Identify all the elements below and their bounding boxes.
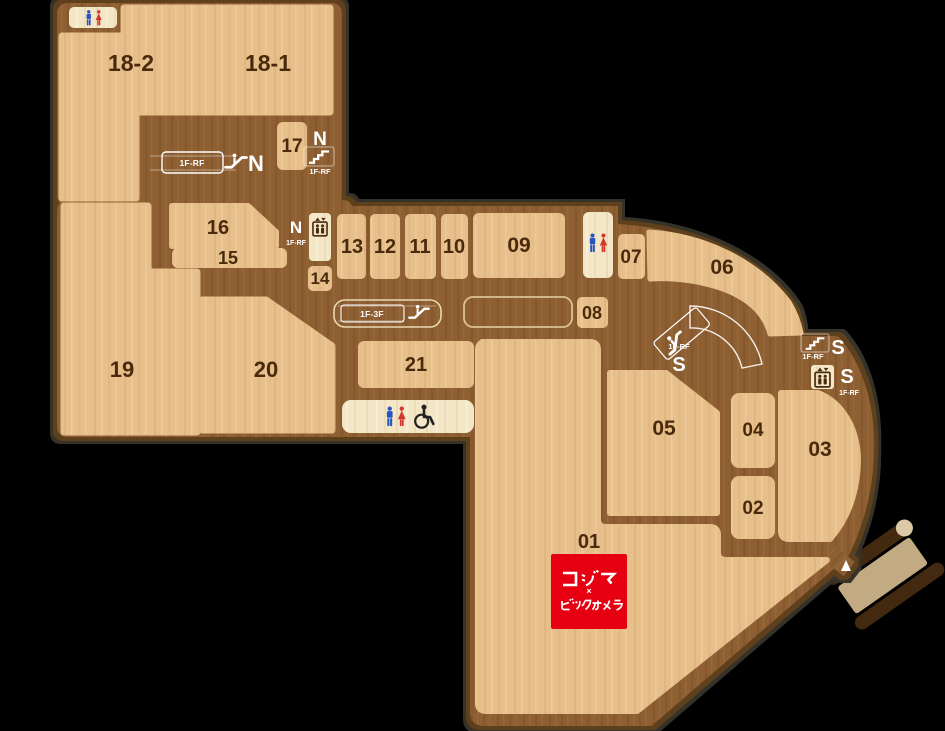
unit-03[interactable]: 03 <box>781 393 858 539</box>
unit-07[interactable]: 07 <box>618 234 645 279</box>
unit-11[interactable]: 11 <box>405 214 436 279</box>
unit-15-label: 15 <box>218 248 238 268</box>
unit-21-label: 21 <box>405 354 427 376</box>
unit-12-label: 12 <box>374 236 396 258</box>
elevator-south-zone: S <box>840 366 853 388</box>
unit-16-label: 16 <box>207 217 229 239</box>
unit-02[interactable]: 02 <box>731 476 775 539</box>
unit-09-label: 09 <box>507 234 530 257</box>
unit-20-label: 20 <box>254 357 278 382</box>
unit-17-label: 17 <box>281 136 302 157</box>
unit-04-label: 04 <box>742 420 764 441</box>
escalator-north-floors: 1F-RF <box>179 158 204 168</box>
unit-08[interactable]: 08 <box>577 297 608 328</box>
store-logo-kojima-biccamera[interactable]: × <box>551 554 627 629</box>
unit-13-label: 13 <box>341 236 363 258</box>
unit-09[interactable]: 09 <box>473 213 565 278</box>
stairs-south-zone: S <box>831 337 844 359</box>
unit-03-label: 03 <box>808 438 831 461</box>
elevator-north-zone: N <box>290 218 302 237</box>
unit-07-label: 07 <box>620 247 641 268</box>
unit-10-label: 10 <box>443 236 465 258</box>
unit-04[interactable]: 04 <box>731 393 775 468</box>
unit-06-label: 06 <box>710 256 733 279</box>
unit-13[interactable]: 13 <box>337 214 366 279</box>
escalator-central-floors: 1F-3F <box>360 309 384 319</box>
unit-11-label: 11 <box>409 236 430 258</box>
logo-separator: × <box>586 586 591 596</box>
unit-08-label: 08 <box>582 303 602 323</box>
floor-map-stage: 18-2 18-1 17 16 15 14 13 12 11 10 09 07 <box>0 0 945 731</box>
unit-12[interactable]: 12 <box>370 214 400 279</box>
escalator-south-floors: 1F-RF <box>668 342 690 351</box>
restroom-northwest[interactable] <box>69 7 117 28</box>
escalator-south-zone: S <box>672 354 685 376</box>
unit-01-label: 01 <box>578 531 600 553</box>
stairs-south-floors: 1F-RF <box>802 352 824 361</box>
unit-14[interactable]: 14 <box>308 266 332 291</box>
unit-19-label: 19 <box>110 357 134 382</box>
unit-18-1-label: 18-1 <box>245 50 291 76</box>
elevator-south-floors: 1F-RF <box>839 390 860 397</box>
unit-05-label: 05 <box>652 417 676 440</box>
unit-17[interactable]: 17 <box>277 122 307 170</box>
elevator-north-floors: 1F-RF <box>286 240 307 247</box>
unit-21[interactable]: 21 <box>358 341 474 388</box>
unit-18-2-label: 18-2 <box>108 50 154 76</box>
stairs-north-floors: 1F-RF <box>309 167 331 176</box>
floor-map-svg: 18-2 18-1 17 16 15 14 13 12 11 10 09 07 <box>0 0 945 731</box>
restroom-central[interactable] <box>583 212 613 278</box>
unit-02-label: 02 <box>742 498 763 519</box>
unit-14-label: 14 <box>311 269 330 288</box>
unit-10[interactable]: 10 <box>441 214 468 279</box>
escalator-north-zone: N <box>248 151 264 176</box>
restroom-south-accessible[interactable] <box>342 400 474 433</box>
unit-15[interactable]: 15 <box>172 248 287 268</box>
